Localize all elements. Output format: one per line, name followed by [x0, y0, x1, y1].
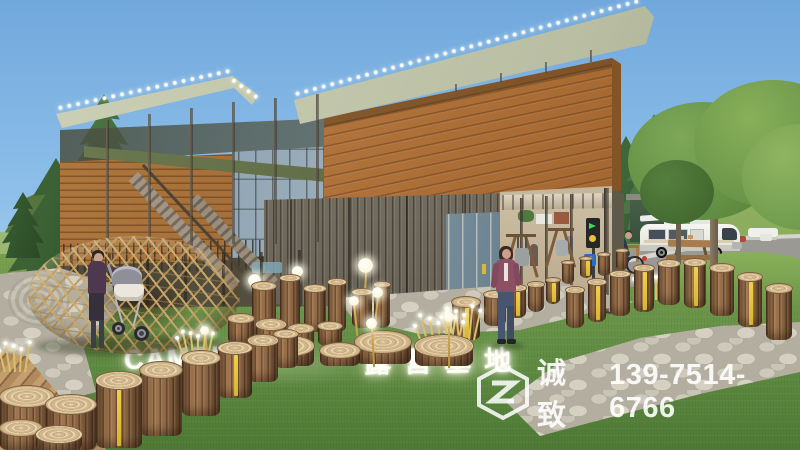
hexagon-z-logo-icon — [474, 363, 532, 421]
log-stump — [738, 277, 762, 327]
dandelion-light-stem — [448, 320, 450, 368]
dandelion-light-orb — [372, 287, 383, 298]
green-arrow-light — [589, 223, 596, 229]
log-stump — [658, 263, 680, 305]
log-stump — [710, 268, 734, 316]
breezeway-ceiling — [502, 193, 612, 210]
dandelion-light-orb — [444, 312, 454, 322]
steel-column — [316, 94, 319, 242]
stroller-canopy — [112, 266, 142, 286]
stroller-frame — [114, 298, 123, 324]
dandelion-light-orb — [349, 296, 359, 306]
steel-column — [590, 50, 592, 62]
log-stump — [218, 348, 252, 398]
visitor-leg — [507, 306, 514, 340]
storefront-sign — [482, 264, 486, 274]
dandelion-light-orb — [358, 258, 373, 273]
visitor-walking — [490, 246, 530, 358]
steel-column — [455, 84, 457, 92]
stroller-wheel — [112, 322, 125, 335]
background-building-brick — [554, 212, 569, 224]
distant-white-car — [760, 234, 772, 241]
swing-bar — [548, 228, 574, 231]
steel-column — [232, 102, 235, 244]
steel-column — [545, 62, 547, 73]
pine-tree — [68, 94, 140, 192]
picnic-item — [688, 235, 693, 239]
rv-window — [648, 229, 666, 240]
visitor-leg — [91, 320, 96, 348]
steel-column — [148, 114, 151, 248]
steel-column — [190, 108, 193, 246]
rv-windshield — [722, 228, 737, 240]
plunge-pool — [252, 262, 282, 273]
visitor-shadow — [490, 342, 524, 350]
log-stump — [580, 258, 592, 278]
log-stump — [36, 434, 82, 450]
stroller-frame — [133, 298, 142, 326]
log-stump — [415, 346, 473, 366]
watermark-phone: 139-7514-6766 — [609, 359, 800, 425]
visitor-leg — [498, 306, 505, 340]
led-strip-lights — [230, 77, 259, 100]
visitor-with-stroller — [80, 250, 156, 366]
log-stump — [684, 262, 706, 308]
watermark: 诚致 139-7514-6766 — [474, 360, 800, 424]
log-stump — [588, 282, 606, 322]
dandelion-light-orb — [366, 318, 377, 329]
picnic-tabletop — [668, 240, 714, 248]
log-stump — [562, 262, 574, 284]
dandelion-light-orb — [200, 326, 209, 335]
visitor-leg — [99, 320, 104, 348]
watermark-brand: 诚致 — [537, 350, 604, 434]
steel-column — [500, 73, 502, 82]
deciduous-tree-canopy — [640, 160, 714, 224]
cyclist-head — [625, 232, 632, 239]
rv-bumper — [732, 242, 742, 249]
swing-bar — [506, 234, 536, 237]
background-building-white — [536, 214, 552, 224]
steel-column — [274, 98, 277, 244]
log-stump — [96, 380, 142, 448]
visitor-skirt — [89, 293, 104, 321]
visitor-head — [502, 249, 511, 259]
log-stump — [546, 280, 560, 304]
camping-base-architectural-rendering: P — [0, 0, 800, 450]
log-stump — [182, 358, 220, 416]
swing-seat — [556, 240, 568, 256]
steel-column — [106, 120, 109, 250]
log-stump — [610, 274, 630, 316]
log-stump — [355, 342, 411, 364]
log-stump — [320, 350, 360, 366]
yellow-light — [589, 235, 596, 242]
log-stump — [616, 250, 628, 270]
reed-light — [655, 279, 657, 300]
led-strip-lights — [294, 0, 639, 97]
log-stump — [766, 288, 792, 340]
stroller-wheel — [134, 326, 149, 341]
log-stump — [140, 370, 182, 436]
visitor-shirt — [504, 263, 508, 281]
log-stump — [634, 268, 654, 312]
log-stump — [566, 290, 584, 328]
led-strip-lights — [57, 68, 234, 111]
log-stump — [528, 284, 544, 312]
